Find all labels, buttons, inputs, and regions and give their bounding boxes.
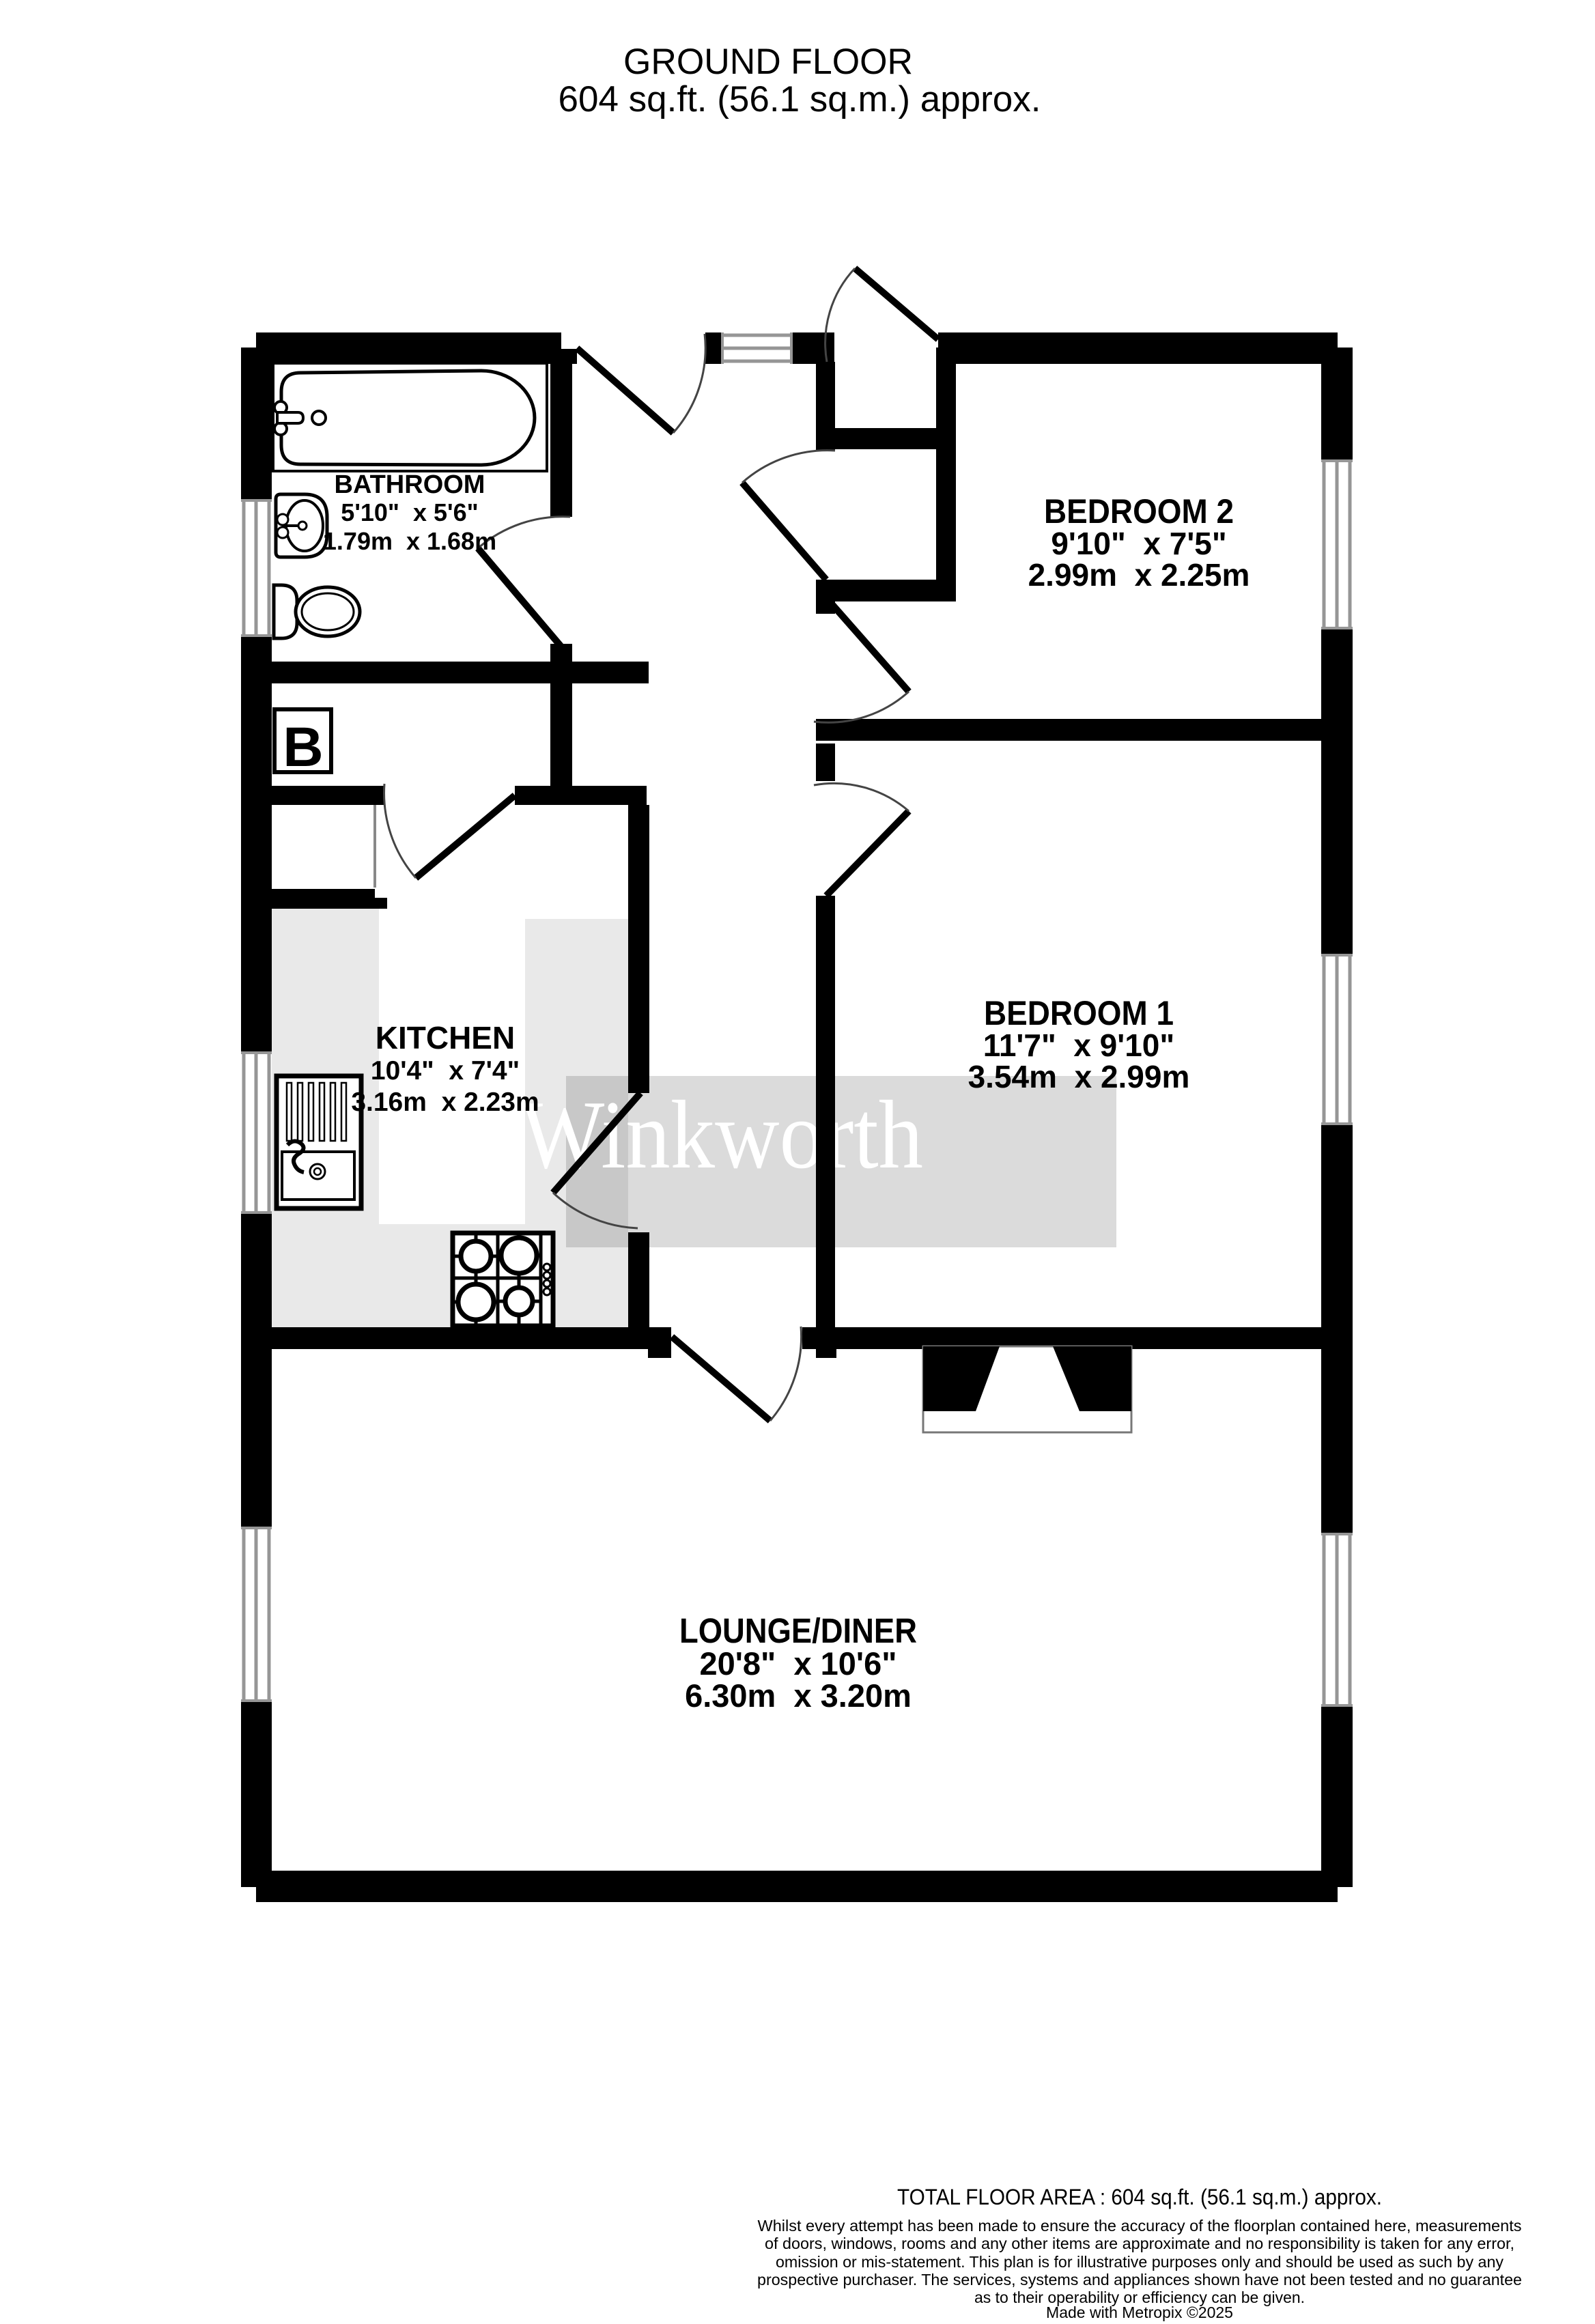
svg-text:omission or mis-statement. Thi: omission or mis-statement. This plan is …: [776, 2253, 1504, 2271]
svg-text:GROUND FLOOR: GROUND FLOOR: [623, 42, 913, 82]
svg-text:9'10" x 7'5": 9'10" x 7'5": [1051, 526, 1226, 561]
svg-text:604 sq.ft. (56.1 sq.m.) approx: 604 sq.ft. (56.1 sq.m.) approx.: [559, 79, 1041, 119]
svg-text:BEDROOM 2: BEDROOM 2: [1044, 492, 1234, 530]
svg-text:LOUNGE/DINER: LOUNGE/DINER: [679, 1611, 917, 1650]
svg-text:6.30m x 3.20m: 6.30m x 3.20m: [685, 1677, 912, 1714]
svg-text:1.79m x 1.68m: 1.79m x 1.68m: [323, 527, 496, 555]
svg-text:5'10" x 5'6": 5'10" x 5'6": [341, 498, 478, 526]
svg-text:11'7" x 9'10": 11'7" x 9'10": [983, 1028, 1174, 1063]
svg-text:KITCHEN: KITCHEN: [376, 1020, 515, 1055]
svg-text:BEDROOM 1: BEDROOM 1: [984, 994, 1174, 1032]
svg-text:Whilst every attempt has been: Whilst every attempt has been made to en…: [758, 2217, 1522, 2235]
svg-text:3.54m x 2.99m: 3.54m x 2.99m: [968, 1059, 1190, 1094]
svg-text:prospective purchaser. The ser: prospective purchaser. The services, sys…: [757, 2271, 1522, 2288]
svg-text:3.16m x 2.23m: 3.16m x 2.23m: [351, 1088, 539, 1117]
svg-text:of doors, windows, rooms and a: of doors, windows, rooms and any other i…: [765, 2235, 1514, 2252]
svg-text:20'8" x 10'6": 20'8" x 10'6": [699, 1645, 897, 1682]
svg-text:10'4" x 7'4": 10'4" x 7'4": [371, 1056, 520, 1086]
svg-text:TOTAL FLOOR AREA : 604 sq.ft.: TOTAL FLOOR AREA : 604 sq.ft. (56.1 sq.m…: [897, 2185, 1382, 2209]
svg-text:2.99m x 2.25m: 2.99m x 2.25m: [1028, 557, 1250, 593]
svg-text:BATHROOM: BATHROOM: [335, 470, 485, 499]
svg-text:B: B: [283, 716, 323, 778]
svg-text:Winkworth: Winkworth: [520, 1081, 923, 1189]
svg-text:Made with Metropix ©2025: Made with Metropix ©2025: [1046, 2304, 1233, 2321]
